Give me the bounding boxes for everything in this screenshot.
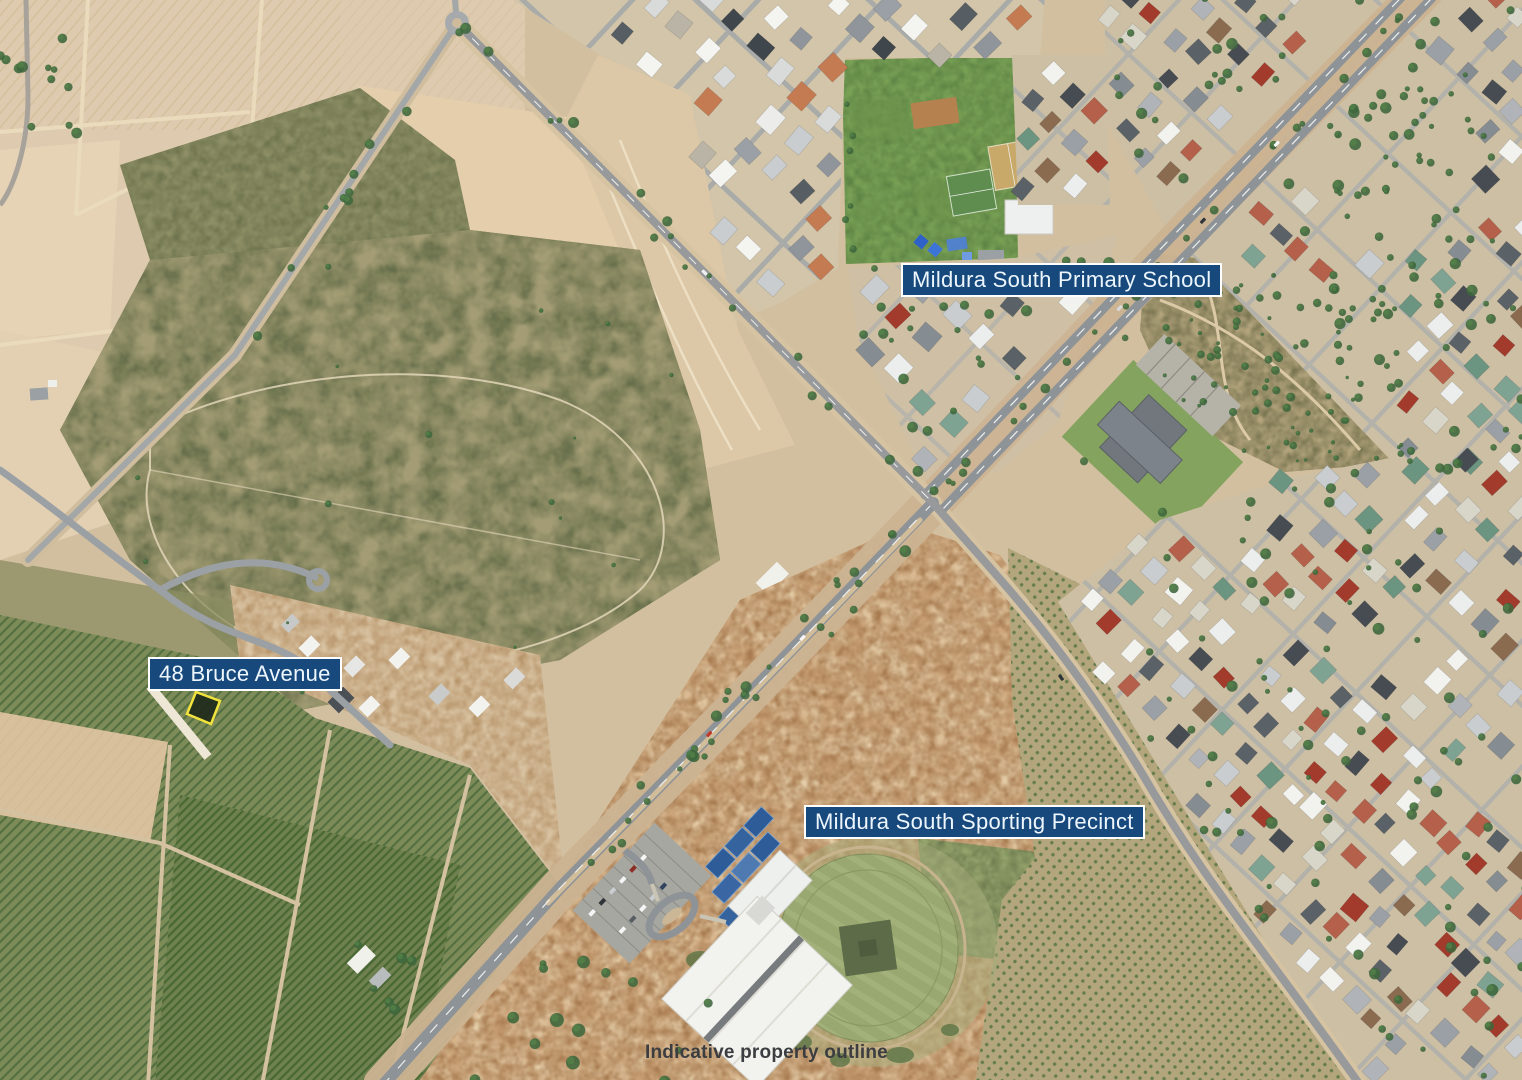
label-primary-school: Mildura South Primary School — [901, 263, 1222, 297]
label-primary-school-text: Mildura South Primary School — [912, 267, 1211, 292]
aerial-property-map: Mildura South Primary School 48 Bruce Av… — [0, 0, 1522, 1080]
caption-indicative-outline: Indicative property outline — [645, 1042, 888, 1064]
label-property-address: 48 Bruce Avenue — [148, 657, 342, 691]
satellite-imagery — [0, 0, 1522, 1080]
label-sporting-precinct-text: Mildura South Sporting Precinct — [815, 809, 1134, 834]
label-property-address-text: 48 Bruce Avenue — [159, 661, 331, 686]
label-sporting-precinct: Mildura South Sporting Precinct — [804, 805, 1145, 839]
